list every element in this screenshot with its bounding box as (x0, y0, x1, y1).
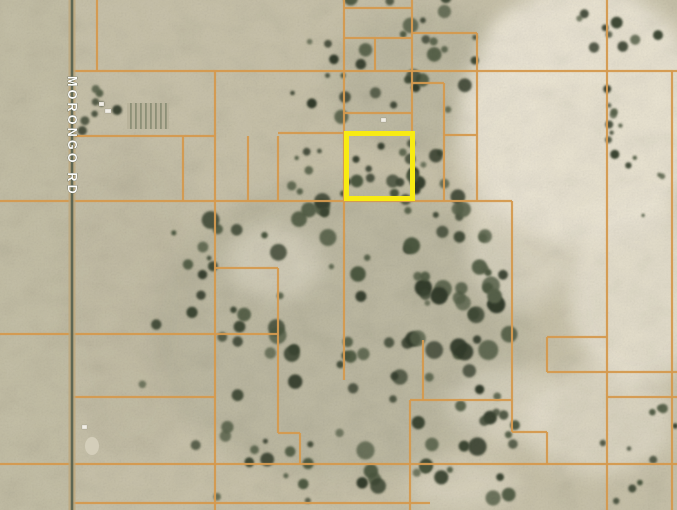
building (99, 102, 104, 106)
road-label: MORONGO RD (65, 76, 79, 197)
satellite-map[interactable]: MORONGO RD (0, 0, 677, 510)
map-viewport[interactable]: MORONGO RD (0, 0, 677, 510)
building (381, 118, 386, 122)
orchard-block (127, 103, 169, 129)
building-pad (85, 437, 99, 455)
building (105, 109, 111, 113)
building (82, 425, 87, 429)
terrain-speckle-texture (0, 0, 677, 510)
